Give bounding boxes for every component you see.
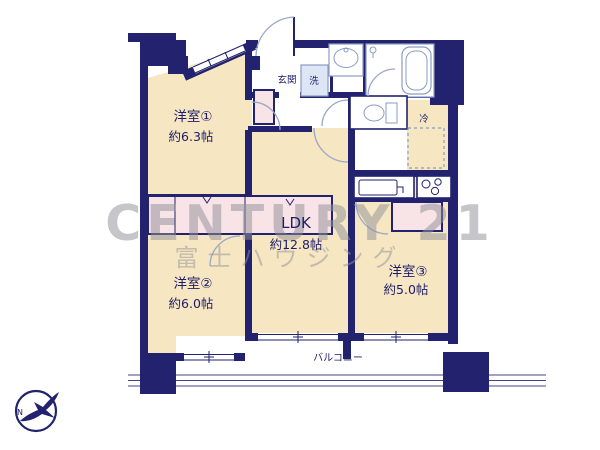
room1-name: 洋室① xyxy=(173,108,212,125)
laundry-label: 洗 xyxy=(309,75,319,87)
ldk-name: LDK xyxy=(281,214,312,232)
bathroom xyxy=(366,44,434,97)
room3-name: 洋室③ xyxy=(388,263,427,280)
fridge-niche-area xyxy=(407,100,448,172)
floor-plan: CENTURY 21 富士ハウジング 洋室① 約6.3帖 洋室② 約6.0帖 洋… xyxy=(0,0,600,450)
ldk-size: 約12.8帖 xyxy=(270,237,323,252)
compass-icon: N xyxy=(16,391,59,431)
entrance-label: 玄関 xyxy=(277,74,296,86)
room2-size: 約6.0帖 xyxy=(169,296,214,311)
toilet xyxy=(350,96,407,129)
shoe-cabinet xyxy=(254,90,274,124)
compass-north-label: N xyxy=(17,408,23,417)
room2-name: 洋室② xyxy=(173,275,212,292)
room3-size: 約5.0帖 xyxy=(384,282,429,297)
washbasin-icon xyxy=(329,44,363,76)
floor-plan-image: CENTURY 21 富士ハウジング 洋室① 約6.3帖 洋室② 約6.0帖 洋… xyxy=(0,0,600,450)
balcony-label: バルコニー xyxy=(313,352,363,364)
bathtub-icon xyxy=(402,47,431,94)
room1-size: 約6.3帖 xyxy=(169,129,214,144)
fridge-label: 冷 xyxy=(419,113,429,125)
